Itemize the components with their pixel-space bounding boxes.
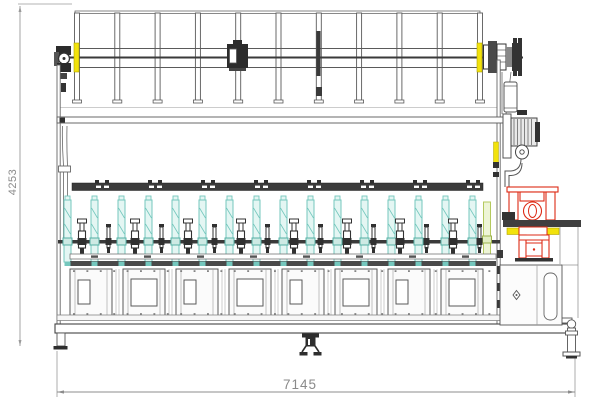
pump-upper-block: [520, 192, 544, 201]
pump-window-dot: [533, 248, 535, 250]
cabinet-window-wide: [449, 279, 475, 306]
rivet-dot: [234, 313, 236, 315]
tube-shaft-node: [333, 238, 342, 245]
tube-cap: [335, 196, 340, 200]
rivet-dot: [448, 270, 450, 272]
rivet-dot: [301, 313, 303, 315]
clamp-cap: [449, 219, 458, 223]
width-dimension: 7145: [57, 341, 575, 397]
rivet-dot: [220, 313, 222, 315]
rail-tab: [254, 180, 258, 183]
yellow-slide-bar: [494, 142, 499, 163]
tube-shaft-node: [171, 238, 180, 245]
pin-shaft-block: [212, 238, 218, 245]
clamp-tip: [451, 248, 455, 254]
platform-bracket: [502, 212, 515, 220]
cabinet-window-wide: [131, 279, 157, 306]
pin-tip: [425, 247, 428, 253]
clamp-shaft-block: [343, 238, 352, 245]
rivet-dot: [395, 270, 397, 272]
rail-dash: [202, 186, 207, 188]
rail-tab: [95, 180, 99, 183]
tube-shaft-node: [360, 238, 369, 245]
lower-rail-dash: [91, 255, 98, 257]
tube-base-tick: [308, 262, 314, 267]
motor-bracket-plate: [503, 114, 511, 158]
rivet-dot: [207, 270, 209, 272]
valve-block: [493, 172, 499, 177]
rivet-dot: [314, 270, 316, 272]
tube-cap: [227, 196, 232, 200]
pin-shaft-block: [106, 238, 112, 245]
tube-shaft-node: [468, 238, 477, 245]
tube-shaft-node: [279, 238, 288, 245]
rivet-dot: [180, 313, 182, 315]
red-drive-unit: [502, 187, 581, 262]
rivet-dot: [220, 270, 222, 272]
rivet-dot: [140, 313, 142, 315]
tube-cap: [146, 196, 151, 200]
yellow-end-bar-right: [477, 43, 482, 72]
tube-base-tick: [281, 262, 287, 267]
tube-base-tick: [92, 262, 98, 267]
spindle-tubes: [63, 196, 477, 262]
height-dimension-label: 4253: [7, 169, 19, 195]
yellow-pad-right: [547, 228, 559, 235]
rivet-dot: [100, 270, 102, 272]
tube-cap: [92, 196, 97, 200]
tube-cap: [173, 196, 178, 200]
tube-cap: [443, 196, 448, 200]
rivet-dot: [194, 313, 196, 315]
rivet-dot: [127, 313, 129, 315]
tube-shaft-node: [144, 238, 153, 245]
pin-shaft-block: [159, 238, 165, 245]
tube-cap: [389, 196, 394, 200]
rail-tab: [148, 180, 152, 183]
rivet-dot: [301, 270, 303, 272]
rail-dash: [308, 186, 313, 188]
dim-arrow-down: [19, 340, 22, 346]
rivet-dot: [194, 270, 196, 272]
cabinet-panel: [388, 269, 430, 317]
tube-cap: [65, 196, 70, 200]
tube-cap: [308, 196, 313, 200]
clamp-cap: [290, 219, 299, 223]
lower-rail-dash: [144, 255, 151, 257]
cabinet-window-wide: [343, 279, 369, 306]
cabinet-panel: [282, 269, 324, 317]
beam-post-foot: [435, 100, 444, 103]
clamp-cap: [396, 219, 405, 223]
rivet-dot: [73, 270, 75, 272]
tie-foot: [316, 87, 322, 96]
clamp-cap: [78, 219, 87, 223]
left-wall: [57, 65, 60, 330]
lower-rail-dash: [462, 255, 469, 257]
rivet-dot: [153, 313, 155, 315]
tube-cap: [119, 196, 124, 200]
pin-tip: [107, 247, 110, 253]
rail-end-block: [60, 118, 66, 123]
end-cabinet: [500, 265, 562, 325]
rail-tab: [264, 180, 268, 183]
drive-flange: [484, 45, 489, 69]
rail-tab: [360, 180, 364, 183]
rivet-dot: [462, 270, 464, 272]
clamp-cap: [237, 219, 246, 223]
beam-post-foot: [234, 100, 243, 103]
rivet-dot: [274, 270, 276, 272]
tube-shaft-node: [414, 238, 423, 245]
tube-base-tick: [335, 262, 341, 267]
beam-post-foot: [355, 100, 364, 103]
rail-dash: [263, 186, 268, 188]
tube-base-tick: [254, 262, 260, 267]
tube-shaft-node: [198, 238, 207, 245]
air-cylinder: [504, 82, 517, 112]
trolley-window: [230, 49, 237, 63]
rivet-dot: [421, 313, 423, 315]
motor-terminal-box: [517, 110, 527, 115]
rivet-dot: [261, 270, 263, 272]
beam-post-foot: [476, 100, 485, 103]
dim-arrow-up: [19, 6, 22, 12]
tube-base-tick: [416, 262, 422, 267]
rail-tab: [158, 180, 162, 183]
rivet-dot: [354, 270, 356, 272]
rail-dash: [157, 186, 162, 188]
beam-post-foot: [193, 100, 202, 103]
pin-tip: [266, 247, 269, 253]
wall-clip: [497, 250, 503, 258]
lower-light-rail: [70, 254, 496, 259]
clamp-cap: [131, 219, 140, 223]
rivet-dot: [354, 313, 356, 315]
tube-base-tick: [443, 262, 449, 267]
rivet-dot: [435, 313, 437, 315]
cabinet-panel: [176, 269, 218, 317]
right-side-equipment: [493, 72, 581, 325]
dim-arrow-left: [57, 390, 64, 393]
gearbox-stud: [518, 71, 522, 76]
dim-arrow-right: [568, 390, 575, 393]
rivet-dot: [421, 270, 423, 272]
rivet-dot: [153, 270, 155, 272]
rail-dash: [369, 186, 374, 188]
trolley-lip: [229, 68, 246, 71]
rail-tab: [211, 180, 215, 183]
rivet-dot: [408, 313, 410, 315]
rivet-dot: [381, 270, 383, 272]
tube-cap: [416, 196, 421, 200]
rail-dash: [467, 186, 472, 188]
rivet-dot: [408, 270, 410, 272]
spindle-tube-green: [484, 202, 491, 258]
clamp-shaft-block: [131, 238, 140, 245]
rail-tab: [466, 180, 470, 183]
upper-dark-rail: [72, 183, 483, 191]
clamp-tip: [133, 248, 137, 254]
body-top-rail: [57, 117, 503, 123]
rivet-dot: [167, 313, 169, 315]
clamp-shaft-block: [184, 238, 193, 245]
rail-tab: [423, 180, 427, 183]
rivet-dot: [207, 313, 209, 315]
tube-base-tick: [362, 262, 368, 267]
tube-base-tick: [119, 262, 125, 267]
beam-post-foot: [314, 100, 323, 103]
rail-dash: [96, 186, 101, 188]
tube-shaft-node: [387, 238, 396, 245]
gearbox-stud: [518, 38, 522, 43]
clamp-tip: [186, 248, 190, 254]
rail-tab: [105, 180, 109, 183]
clamp-shaft-block: [78, 238, 87, 245]
cabinet-window-narrow: [78, 280, 90, 304]
tube-shaft-node: [306, 238, 315, 245]
rivet-dot: [247, 270, 249, 272]
drive-gearbox: [512, 43, 522, 71]
rail-dash: [149, 186, 154, 188]
tube-base-tick: [470, 262, 476, 267]
clamp-tip: [80, 248, 84, 254]
machine-body: [57, 60, 545, 330]
lower-rail-dash: [356, 255, 363, 257]
cabinet-window-wide: [237, 279, 263, 306]
yellow-pad-left: [507, 228, 519, 235]
wall-bracket: [61, 83, 66, 92]
pin-tip: [478, 247, 481, 253]
beam-post-foot: [73, 100, 82, 103]
rivet-dot: [73, 313, 75, 315]
rail-dash: [361, 186, 366, 188]
rail-tab: [317, 180, 321, 183]
tube-shaft-node: [90, 238, 99, 245]
tube-cap: [254, 196, 259, 200]
tube-shaft-node: [225, 238, 234, 245]
beam-post-foot: [274, 100, 283, 103]
tube-base-tick: [200, 262, 206, 267]
top-beam-assembly: [54, 11, 523, 108]
roller-hub: [63, 57, 66, 60]
beam-post-foot: [153, 100, 162, 103]
clamp-cap: [343, 219, 352, 223]
pin-tip: [319, 247, 322, 253]
tube-base-tick: [173, 262, 179, 267]
width-dimension-label: 7145: [283, 377, 317, 392]
lower-rail-dash: [250, 255, 257, 257]
rivet-dot: [462, 313, 464, 315]
tube-base-tick: [65, 262, 71, 267]
drive-spacer: [506, 47, 512, 67]
rivet-dot: [488, 270, 490, 272]
drive-piping: [505, 159, 522, 187]
jack-legs: [302, 346, 319, 352]
pump-top-plate: [507, 187, 558, 192]
rail-tab: [413, 180, 417, 183]
tube-shaft-node: [252, 238, 261, 245]
clamp-tip: [398, 248, 402, 254]
clamp-tip: [345, 248, 349, 254]
rivet-dot: [140, 270, 142, 272]
pipe-collar: [59, 166, 71, 172]
rail-tab: [307, 180, 311, 183]
rivet-dot: [86, 313, 88, 315]
rivet-dot: [341, 270, 343, 272]
clamp-shaft-block: [237, 238, 246, 245]
cabinet-window-narrow: [396, 280, 408, 304]
trolley-knob: [233, 40, 242, 44]
gearbox-stud: [513, 71, 517, 76]
rail-dash: [104, 186, 109, 188]
rivet-dot: [368, 270, 370, 272]
pin-shaft-block: [371, 238, 377, 245]
clamp-shaft-block: [290, 238, 299, 245]
clamp-cap: [184, 219, 193, 223]
rivet-dot: [113, 270, 115, 272]
lower-rail-dash: [197, 255, 204, 257]
pin-shaft-block: [318, 238, 324, 245]
rivet-dot: [261, 313, 263, 315]
tube-shaft-node: [117, 238, 126, 245]
left-foot: [54, 346, 68, 350]
rail-dash: [255, 186, 260, 188]
base-band: [57, 315, 561, 321]
rivet-dot: [395, 313, 397, 315]
pipe-elbow: [567, 320, 575, 328]
rivet-dot: [341, 313, 343, 315]
valve-block: [493, 162, 499, 168]
rivet-dot: [274, 313, 276, 315]
motor-body: [511, 118, 537, 146]
clamp-shaft-block: [449, 238, 458, 245]
clamp-tip: [239, 248, 243, 254]
machine-elevation-drawing: 4253 7145: [0, 0, 600, 400]
rivet-dot: [100, 313, 102, 315]
pipe-foot-pad: [566, 356, 577, 359]
rivet-dot: [287, 313, 289, 315]
tube-shaft-node: [63, 238, 72, 245]
carriage-trolley: [227, 40, 248, 71]
rivet-dot: [314, 313, 316, 315]
pin-tip: [213, 247, 216, 253]
tube-base-tick: [146, 262, 152, 267]
rail-tab: [476, 180, 480, 183]
pump-right-column: [546, 192, 555, 220]
gearbox-stud: [513, 38, 517, 43]
rail-dash: [210, 186, 215, 188]
rail-tab: [201, 180, 205, 183]
green-tube: [483, 202, 492, 258]
leveling-jack: [300, 334, 322, 356]
right-end-drive: [484, 38, 523, 76]
cabinet-panel: [70, 269, 112, 317]
beam-post-foot: [113, 100, 122, 103]
cabinet-window-narrow: [184, 280, 196, 304]
jack-foot: [314, 352, 322, 356]
tube-cap: [470, 196, 475, 200]
rivet-dot: [328, 270, 330, 272]
drive-housing: [488, 41, 497, 73]
tube-base-tick: [389, 262, 395, 267]
tie-strut: [317, 31, 321, 76]
tube-cap: [362, 196, 367, 200]
rail-dash: [475, 186, 480, 188]
rivet-dot: [328, 313, 330, 315]
roller-foot: [60, 73, 67, 79]
rivet-dot: [234, 270, 236, 272]
clamp-shaft-block: [396, 238, 405, 245]
pin-shaft-block: [424, 238, 430, 245]
rivet-dot: [287, 270, 289, 272]
motor-end-cap: [535, 122, 540, 142]
pin-tip: [160, 247, 163, 253]
clamp-tip: [292, 248, 296, 254]
rail-dash: [316, 186, 321, 188]
pump-throat: [519, 227, 547, 235]
pin-shaft-block: [477, 238, 483, 245]
lower-rail-dash: [409, 255, 416, 257]
rail-dash: [422, 186, 427, 188]
cabinet-window-narrow: [290, 280, 302, 304]
base-sill: [55, 324, 571, 333]
rivet-dot: [435, 270, 437, 272]
drive-motor: [503, 110, 540, 159]
pipe-foot: [563, 352, 580, 356]
jack-slot: [308, 339, 310, 345]
rivet-dot: [247, 313, 249, 315]
pipe-line: [62, 126, 63, 240]
left-leg: [57, 333, 65, 346]
tube-shaft-node: [483, 236, 492, 243]
pump-cross-bar: [519, 235, 549, 240]
jack-body: [306, 338, 316, 347]
rivet-dot: [86, 270, 88, 272]
jack-flange: [302, 334, 319, 338]
rivet-dot: [180, 270, 182, 272]
tube-cap: [200, 196, 205, 200]
lower-rail-dash: [303, 255, 310, 257]
rivet-dot: [113, 313, 115, 315]
rivet-dot: [475, 313, 477, 315]
pin-tip: [372, 247, 375, 253]
cabinet-slot: [544, 273, 557, 320]
tube-base-tick: [227, 262, 233, 267]
rivet-dot: [448, 313, 450, 315]
pump-base-pad: [515, 258, 553, 262]
base-cabinets: [70, 269, 483, 317]
pump-platform: [503, 220, 581, 227]
beam-post-foot: [395, 100, 404, 103]
pipe-collar: [566, 331, 578, 335]
rivet-dot: [127, 270, 129, 272]
valve-symbol-dot: [516, 294, 518, 296]
pin-shaft-block: [265, 238, 271, 245]
rail-tab: [370, 180, 374, 183]
tube-cap: [281, 196, 286, 200]
rail-dash: [414, 186, 419, 188]
rivet-dot: [381, 313, 383, 315]
rivet-dot: [368, 313, 370, 315]
jack-foot: [300, 352, 308, 356]
rivet-dot: [475, 270, 477, 272]
rivet-dot: [488, 313, 490, 315]
yellow-end-bar-left: [74, 43, 79, 72]
rivet-dot: [167, 270, 169, 272]
motor-shaft-boss: [516, 145, 529, 159]
